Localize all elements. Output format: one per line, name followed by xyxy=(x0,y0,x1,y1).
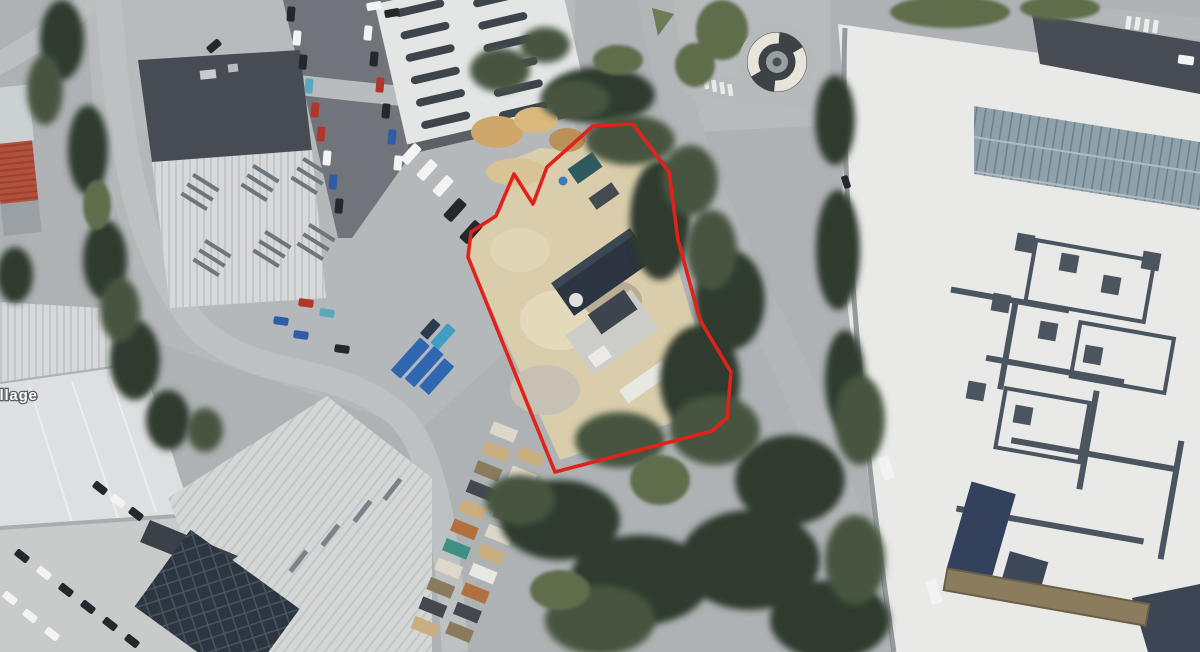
satellite-map[interactable]: Village xyxy=(0,0,1200,652)
map-label-village: Village xyxy=(0,387,38,404)
building-east-complex xyxy=(838,0,1200,652)
blue-vehicle xyxy=(559,177,568,186)
roundabout-garden xyxy=(739,24,815,100)
